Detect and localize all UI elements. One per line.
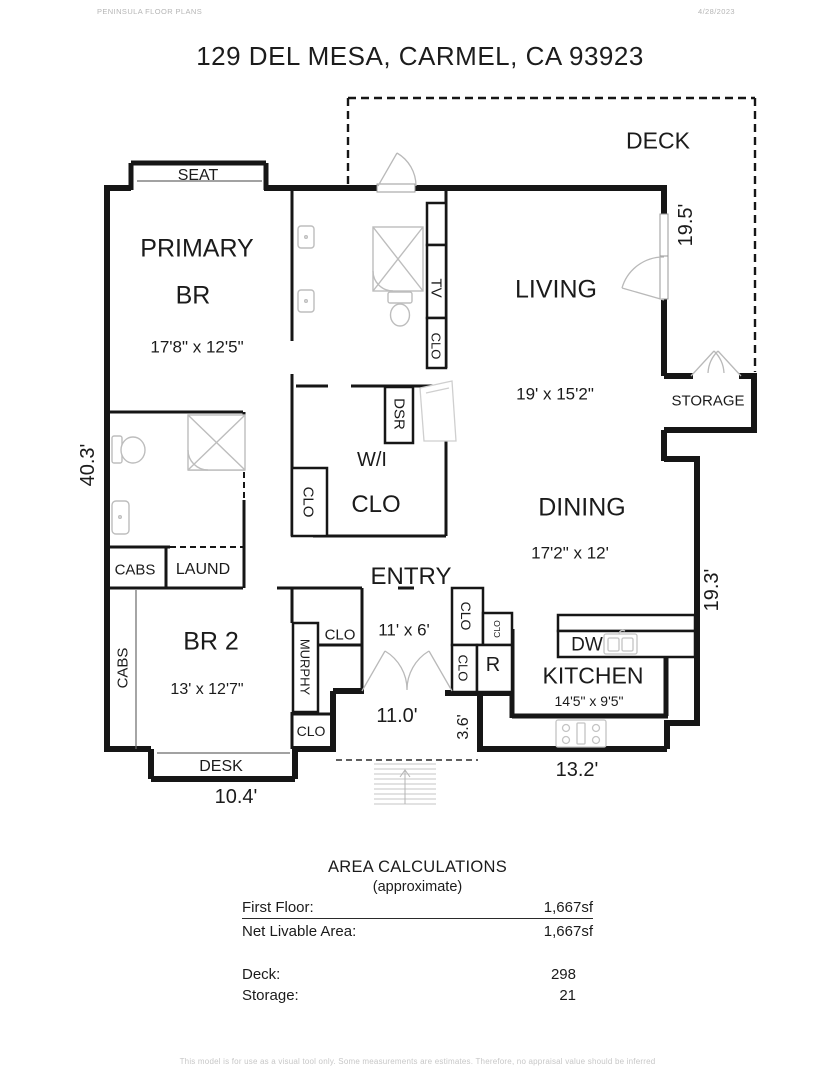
desk-label: DESK (199, 759, 243, 775)
room-label-storage: STORAGE (671, 394, 744, 409)
deck-door-leaf (377, 184, 415, 192)
dresser-label: DSR (392, 398, 407, 430)
room-label-wiclo-1: W/I (357, 450, 387, 470)
area-row-value: 1,667sf (544, 923, 593, 940)
area-row-value: 1,667sf (544, 899, 593, 916)
living-door-arc (622, 257, 664, 300)
living-dims: 19' x 15'2" (516, 386, 594, 403)
entry-closet-a-label: CLO (459, 602, 473, 631)
entry-closet-b-label: CLO (493, 620, 502, 637)
room-label-primary-br-1: PRIMARY (140, 237, 253, 262)
kitchen-counter-box (558, 615, 695, 631)
kitchen-sink-icon (604, 630, 637, 654)
room-label-dining: DINING (538, 496, 626, 521)
dim-desk-width: 10.4' (215, 787, 258, 807)
shower-icon (373, 227, 423, 291)
stove-icon (556, 720, 606, 747)
page-title: 129 DEL MESA, CARMEL, CA 93923 (196, 43, 644, 69)
br2-dims: 13' x 12'7" (170, 682, 243, 698)
disclaimer-text: This model is for use as a visual tool o… (0, 1057, 835, 1066)
room-label-living: LIVING (515, 278, 597, 303)
clo-niche-label: CLO (430, 333, 443, 360)
area-calc-title: AREA CALCULATIONS (242, 858, 593, 877)
date-text: 4/28/2023 (698, 8, 735, 16)
dim-porch-depth: 3.6' (456, 714, 472, 739)
cabs-label: CABS (115, 563, 156, 578)
niche-box (427, 203, 446, 245)
floor-plan-page: PENINSULA FLOOR PLANS 4/28/2023 129 DEL … (0, 0, 835, 1080)
fridge-label: R (486, 655, 500, 675)
area-row-deck: Deck: 298 (242, 966, 593, 983)
kitchen-dims: 14'5" x 9'5" (555, 694, 624, 708)
chair-icon (420, 381, 456, 441)
tv-niche-label: TV (429, 278, 444, 297)
interior-dashed-doors (170, 472, 244, 547)
room-label-entry: ENTRY (371, 565, 452, 589)
dim-left-side: 40.3' (78, 444, 98, 487)
room-label-kitchen: KITCHEN (543, 665, 644, 688)
area-row-label: Net Livable Area: (242, 923, 356, 940)
wiclo-closet-label: CLO (301, 487, 316, 518)
murphy-bed-label: MURPHY (299, 639, 312, 695)
brand-text: PENINSULA FLOOR PLANS (97, 8, 202, 16)
dining-dims: 17'2" x 12' (531, 545, 609, 562)
area-row-storage: Storage: 21 (242, 987, 593, 1004)
seat-label: SEAT (178, 168, 219, 184)
area-row-label: First Floor: (242, 899, 314, 916)
toilet-icon (388, 292, 412, 326)
dim-kitchen-width: 13.2' (556, 760, 599, 780)
second-bath-fixtures (112, 415, 245, 534)
br2-closet-bottom-label: CLO (297, 724, 326, 738)
area-row-first-floor: First Floor: 1,667sf (242, 899, 593, 919)
area-row-value: 298 (551, 966, 593, 983)
shower-icon (188, 415, 245, 470)
toilet-icon (112, 436, 145, 463)
area-calc-subtitle: (approximate) (242, 879, 593, 895)
sink-icon (298, 226, 314, 248)
cabs-label-vertical: CABS (116, 648, 131, 689)
sink-icon (298, 290, 314, 312)
room-label-deck: DECK (626, 130, 690, 153)
area-row-value: 21 (559, 987, 593, 1004)
room-label-br2: BR 2 (183, 630, 239, 655)
area-calculations: AREA CALCULATIONS (approximate) First Fl… (242, 858, 593, 1004)
dishwasher-label: DW (571, 636, 603, 655)
room-label-primary-br-2: BR (176, 284, 211, 309)
area-row-label: Deck: (242, 966, 280, 983)
entry-door-arcs (362, 651, 452, 691)
room-label-wiclo-2: CLO (351, 493, 400, 517)
laundry-label: LAUND (176, 562, 230, 578)
stairs-icon (374, 764, 436, 804)
dim-deck-side: 19.5' (676, 204, 696, 247)
area-row-net-livable: Net Livable Area: 1,667sf (242, 923, 593, 940)
deck-door-arc (378, 153, 416, 186)
area-row-label: Storage: (242, 987, 299, 1004)
dim-porch-width: 11.0' (376, 706, 417, 726)
sink-icon (112, 501, 129, 534)
br2-closet-top-label: CLO (325, 628, 356, 643)
living-door-leaf (660, 256, 668, 299)
entry-dims: 11' x 6' (378, 622, 430, 639)
primary-br-dims: 17'8" x 12'5" (150, 339, 243, 356)
entry-closet-c-label: CLO (457, 655, 470, 682)
primary-bath-fixtures (298, 226, 423, 326)
living-window (660, 214, 668, 256)
storage-door-arcs (691, 351, 741, 376)
dim-dining-side: 19.3' (702, 569, 722, 612)
